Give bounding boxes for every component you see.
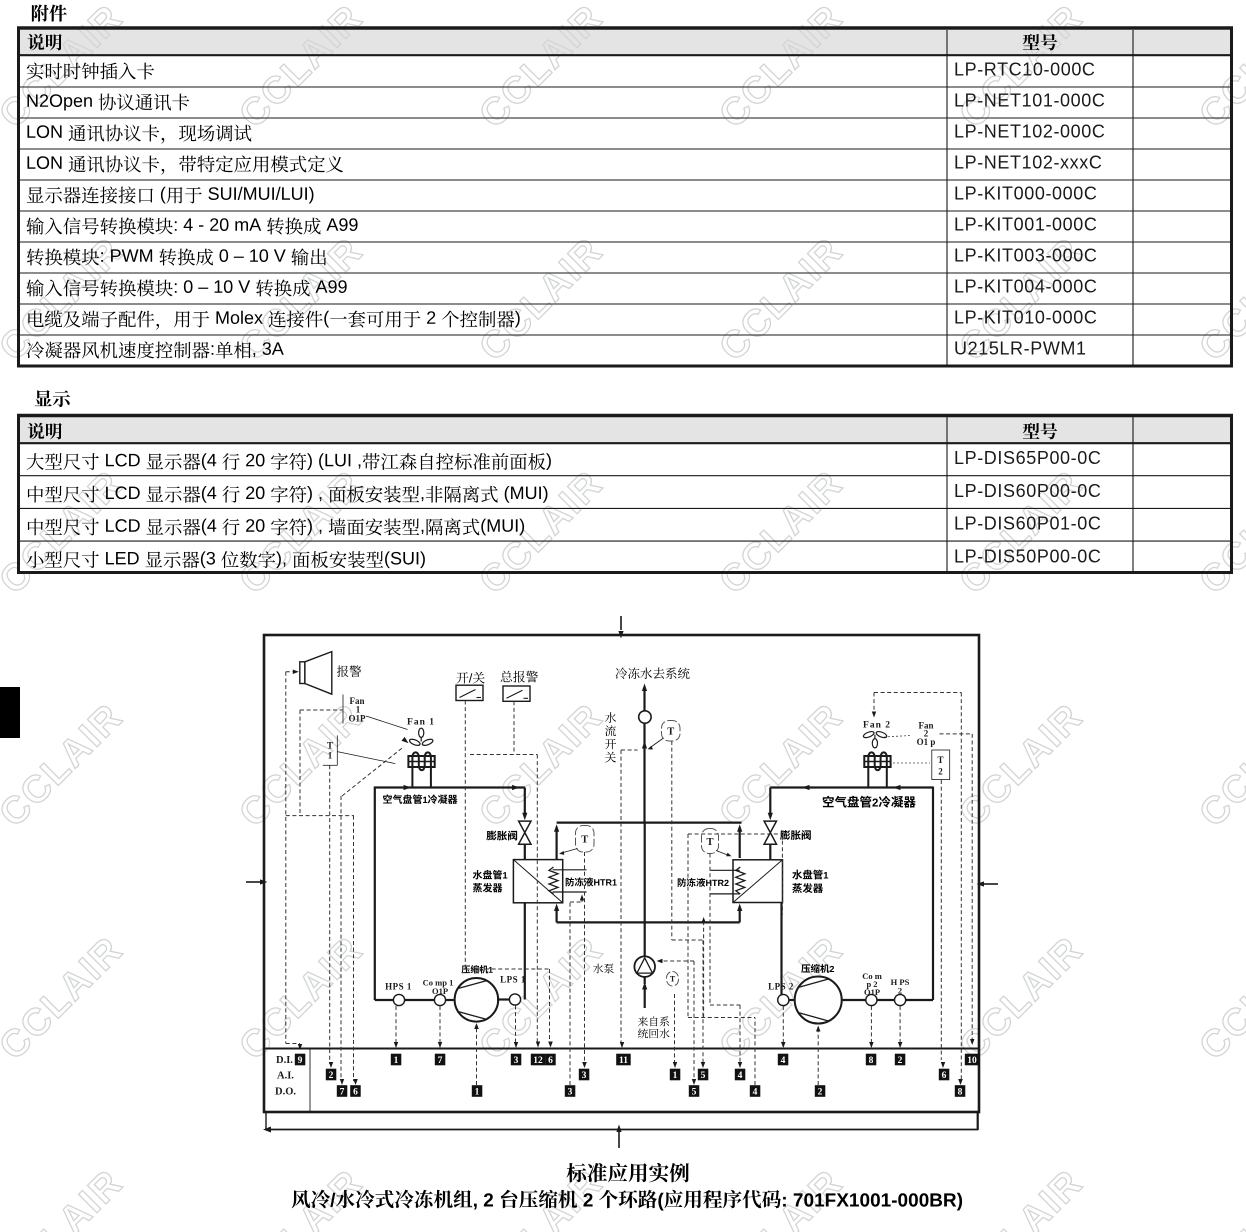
svg-text:HPS 1: HPS 1: [385, 982, 412, 992]
svg-text:8: 8: [958, 1088, 963, 1098]
svg-text:4: 4: [738, 1071, 743, 1081]
svg-text:2: 2: [818, 1088, 823, 1098]
svg-text:3: 3: [582, 1071, 587, 1081]
svg-text:10: 10: [967, 1056, 977, 1066]
svg-text:T: T: [581, 835, 588, 846]
svg-text:Fan 1: Fan 1: [407, 718, 435, 728]
svg-text:T: T: [937, 755, 943, 765]
svg-text:T: T: [327, 741, 333, 751]
svg-text:2: 2: [898, 1056, 903, 1066]
svg-text:4: 4: [753, 1088, 758, 1098]
svg-text:O1 p: O1 p: [917, 737, 936, 747]
svg-text:12: 12: [533, 1056, 543, 1066]
svg-text:3: 3: [568, 1088, 573, 1098]
svg-text:6: 6: [942, 1071, 947, 1081]
svg-text:T: T: [667, 727, 674, 738]
svg-text:LP-KIT000-000C: LP-KIT000-000C: [954, 184, 1097, 204]
svg-text:6: 6: [548, 1056, 553, 1066]
svg-text:LP-KIT004-000C: LP-KIT004-000C: [954, 277, 1097, 297]
svg-text:11: 11: [619, 1056, 628, 1066]
svg-text:1: 1: [475, 1088, 480, 1098]
svg-text:D.I.: D.I.: [276, 1055, 293, 1066]
svg-text:LPS 1: LPS 1: [500, 975, 526, 985]
svg-text:1: 1: [673, 1071, 678, 1081]
svg-text:A.I.: A.I.: [277, 1071, 294, 1082]
svg-text:1: 1: [394, 1056, 399, 1066]
svg-text:D.O.: D.O.: [275, 1087, 296, 1098]
svg-text:5: 5: [701, 1071, 706, 1081]
svg-text:LP-DIS50P00-0C: LP-DIS50P00-0C: [954, 546, 1101, 566]
svg-text:LP-NET101-000C: LP-NET101-000C: [954, 91, 1105, 111]
svg-text:1: 1: [328, 751, 333, 761]
svg-text:5: 5: [692, 1088, 697, 1098]
svg-text:O1P: O1P: [349, 714, 367, 724]
svg-text:6: 6: [353, 1088, 358, 1098]
svg-text:LP-NET102-000C: LP-NET102-000C: [954, 122, 1105, 142]
svg-text:2: 2: [329, 1071, 334, 1081]
svg-text:8: 8: [869, 1056, 874, 1066]
svg-text:Fan 2: Fan 2: [863, 721, 891, 731]
svg-text:7: 7: [438, 1056, 443, 1066]
svg-text:LPS 2: LPS 2: [768, 982, 794, 992]
svg-text:3: 3: [514, 1056, 519, 1066]
svg-text:4: 4: [781, 1056, 786, 1066]
svg-text:LP-RTC10-000C: LP-RTC10-000C: [954, 60, 1096, 80]
svg-text:LP-DIS60P00-0C: LP-DIS60P00-0C: [954, 481, 1101, 501]
svg-text:LP-KIT010-000C: LP-KIT010-000C: [954, 308, 1097, 328]
svg-text:LP-KIT001-000C: LP-KIT001-000C: [954, 215, 1097, 235]
svg-text:T: T: [670, 975, 676, 984]
svg-text:2: 2: [938, 767, 943, 777]
svg-text:LP-DIS60P01-0C: LP-DIS60P01-0C: [954, 514, 1101, 534]
svg-text:LP-KIT003-000C: LP-KIT003-000C: [954, 246, 1097, 266]
svg-text:LP-DIS65P00-0C: LP-DIS65P00-0C: [954, 448, 1101, 468]
svg-text:LP-NET102-xxxC: LP-NET102-xxxC: [954, 153, 1102, 173]
svg-text:U215LR-PWM1: U215LR-PWM1: [954, 339, 1087, 359]
svg-text:T: T: [706, 837, 713, 848]
svg-text:9: 9: [298, 1056, 303, 1066]
svg-text:7: 7: [340, 1088, 345, 1098]
